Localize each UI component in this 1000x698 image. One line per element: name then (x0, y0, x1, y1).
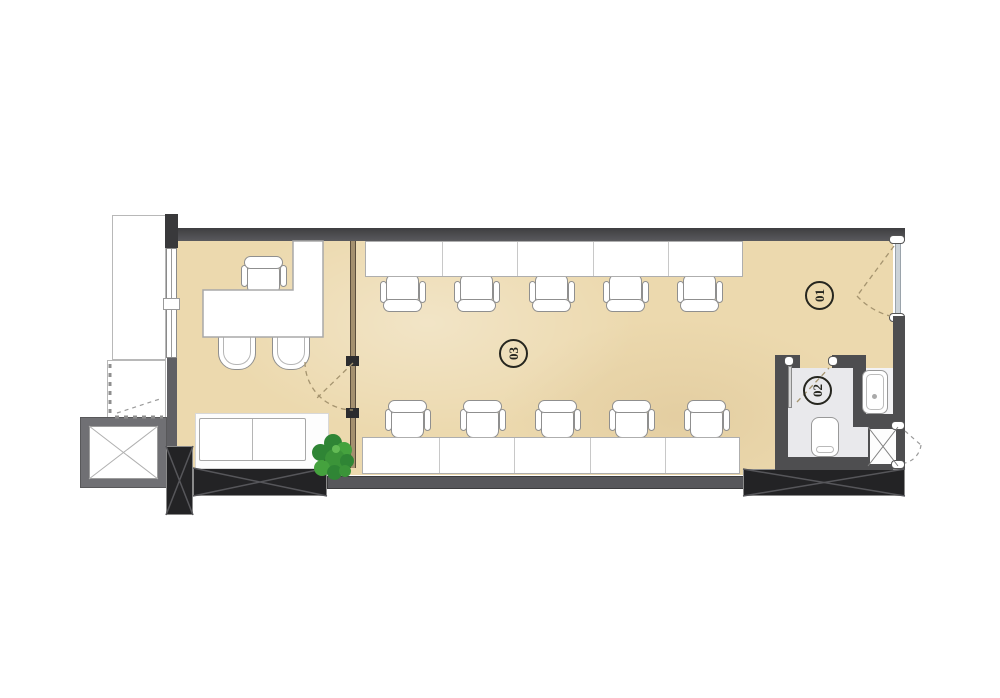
door-jamb-cap (828, 356, 838, 366)
lobby-area (107, 360, 166, 418)
room-label-entry: 01 (805, 281, 834, 310)
corner-pier (165, 214, 178, 248)
office-chair (609, 400, 655, 440)
desk-row-bottom (362, 437, 740, 474)
structural-column (166, 446, 193, 515)
room-label-text: 02 (810, 384, 826, 397)
bathroom-door-leaf (788, 366, 792, 408)
floor-plan: 01 02 03 (0, 0, 1000, 698)
door-hinge (346, 356, 359, 366)
room-label-text: 03 (506, 347, 522, 360)
office-chair (535, 400, 581, 440)
room-label-text: 01 (812, 289, 828, 302)
desk-divider (517, 242, 518, 276)
top-wall (177, 228, 905, 241)
elevator-shaft-icon (89, 426, 158, 479)
desk-divider (442, 242, 443, 276)
desk-divider (668, 242, 669, 276)
desk-divider (590, 438, 591, 473)
shear-wall-left (193, 468, 327, 496)
door-jamb-cap (891, 421, 905, 430)
desk-divider (514, 438, 515, 473)
door-jamb-cap (891, 460, 905, 469)
guest-chair (218, 332, 256, 370)
desk-divider (665, 438, 666, 473)
door-hinge (346, 408, 359, 418)
office-chair (380, 272, 426, 312)
desk-divider (593, 242, 594, 276)
office-chair (684, 400, 730, 440)
guest-chair (272, 332, 310, 370)
bathroom-wall (775, 355, 788, 470)
sofa (199, 418, 306, 461)
window-mullion (163, 298, 180, 310)
office-chair (603, 272, 649, 312)
room-label-bathroom: 02 (803, 376, 832, 405)
office-chair (454, 272, 500, 312)
shear-wall-right (743, 469, 905, 496)
manager-chair (241, 256, 287, 296)
toilet-icon (811, 417, 839, 457)
room-label-office: 03 (499, 339, 528, 368)
left-wall (167, 358, 177, 446)
entrance-door (895, 243, 901, 316)
office-chair (460, 400, 506, 440)
desk-row-top (365, 241, 743, 277)
corridor-area (112, 215, 166, 360)
office-chair (677, 272, 723, 312)
bottom-wall (327, 476, 745, 489)
plant-icon (310, 434, 360, 486)
door-jamb-cap (889, 235, 905, 244)
office-chair (385, 400, 431, 440)
desk-divider (439, 438, 440, 473)
sink-icon (862, 370, 888, 414)
sink-drain-icon (872, 394, 877, 399)
door-jamb-cap (784, 356, 794, 366)
office-chair (529, 272, 575, 312)
